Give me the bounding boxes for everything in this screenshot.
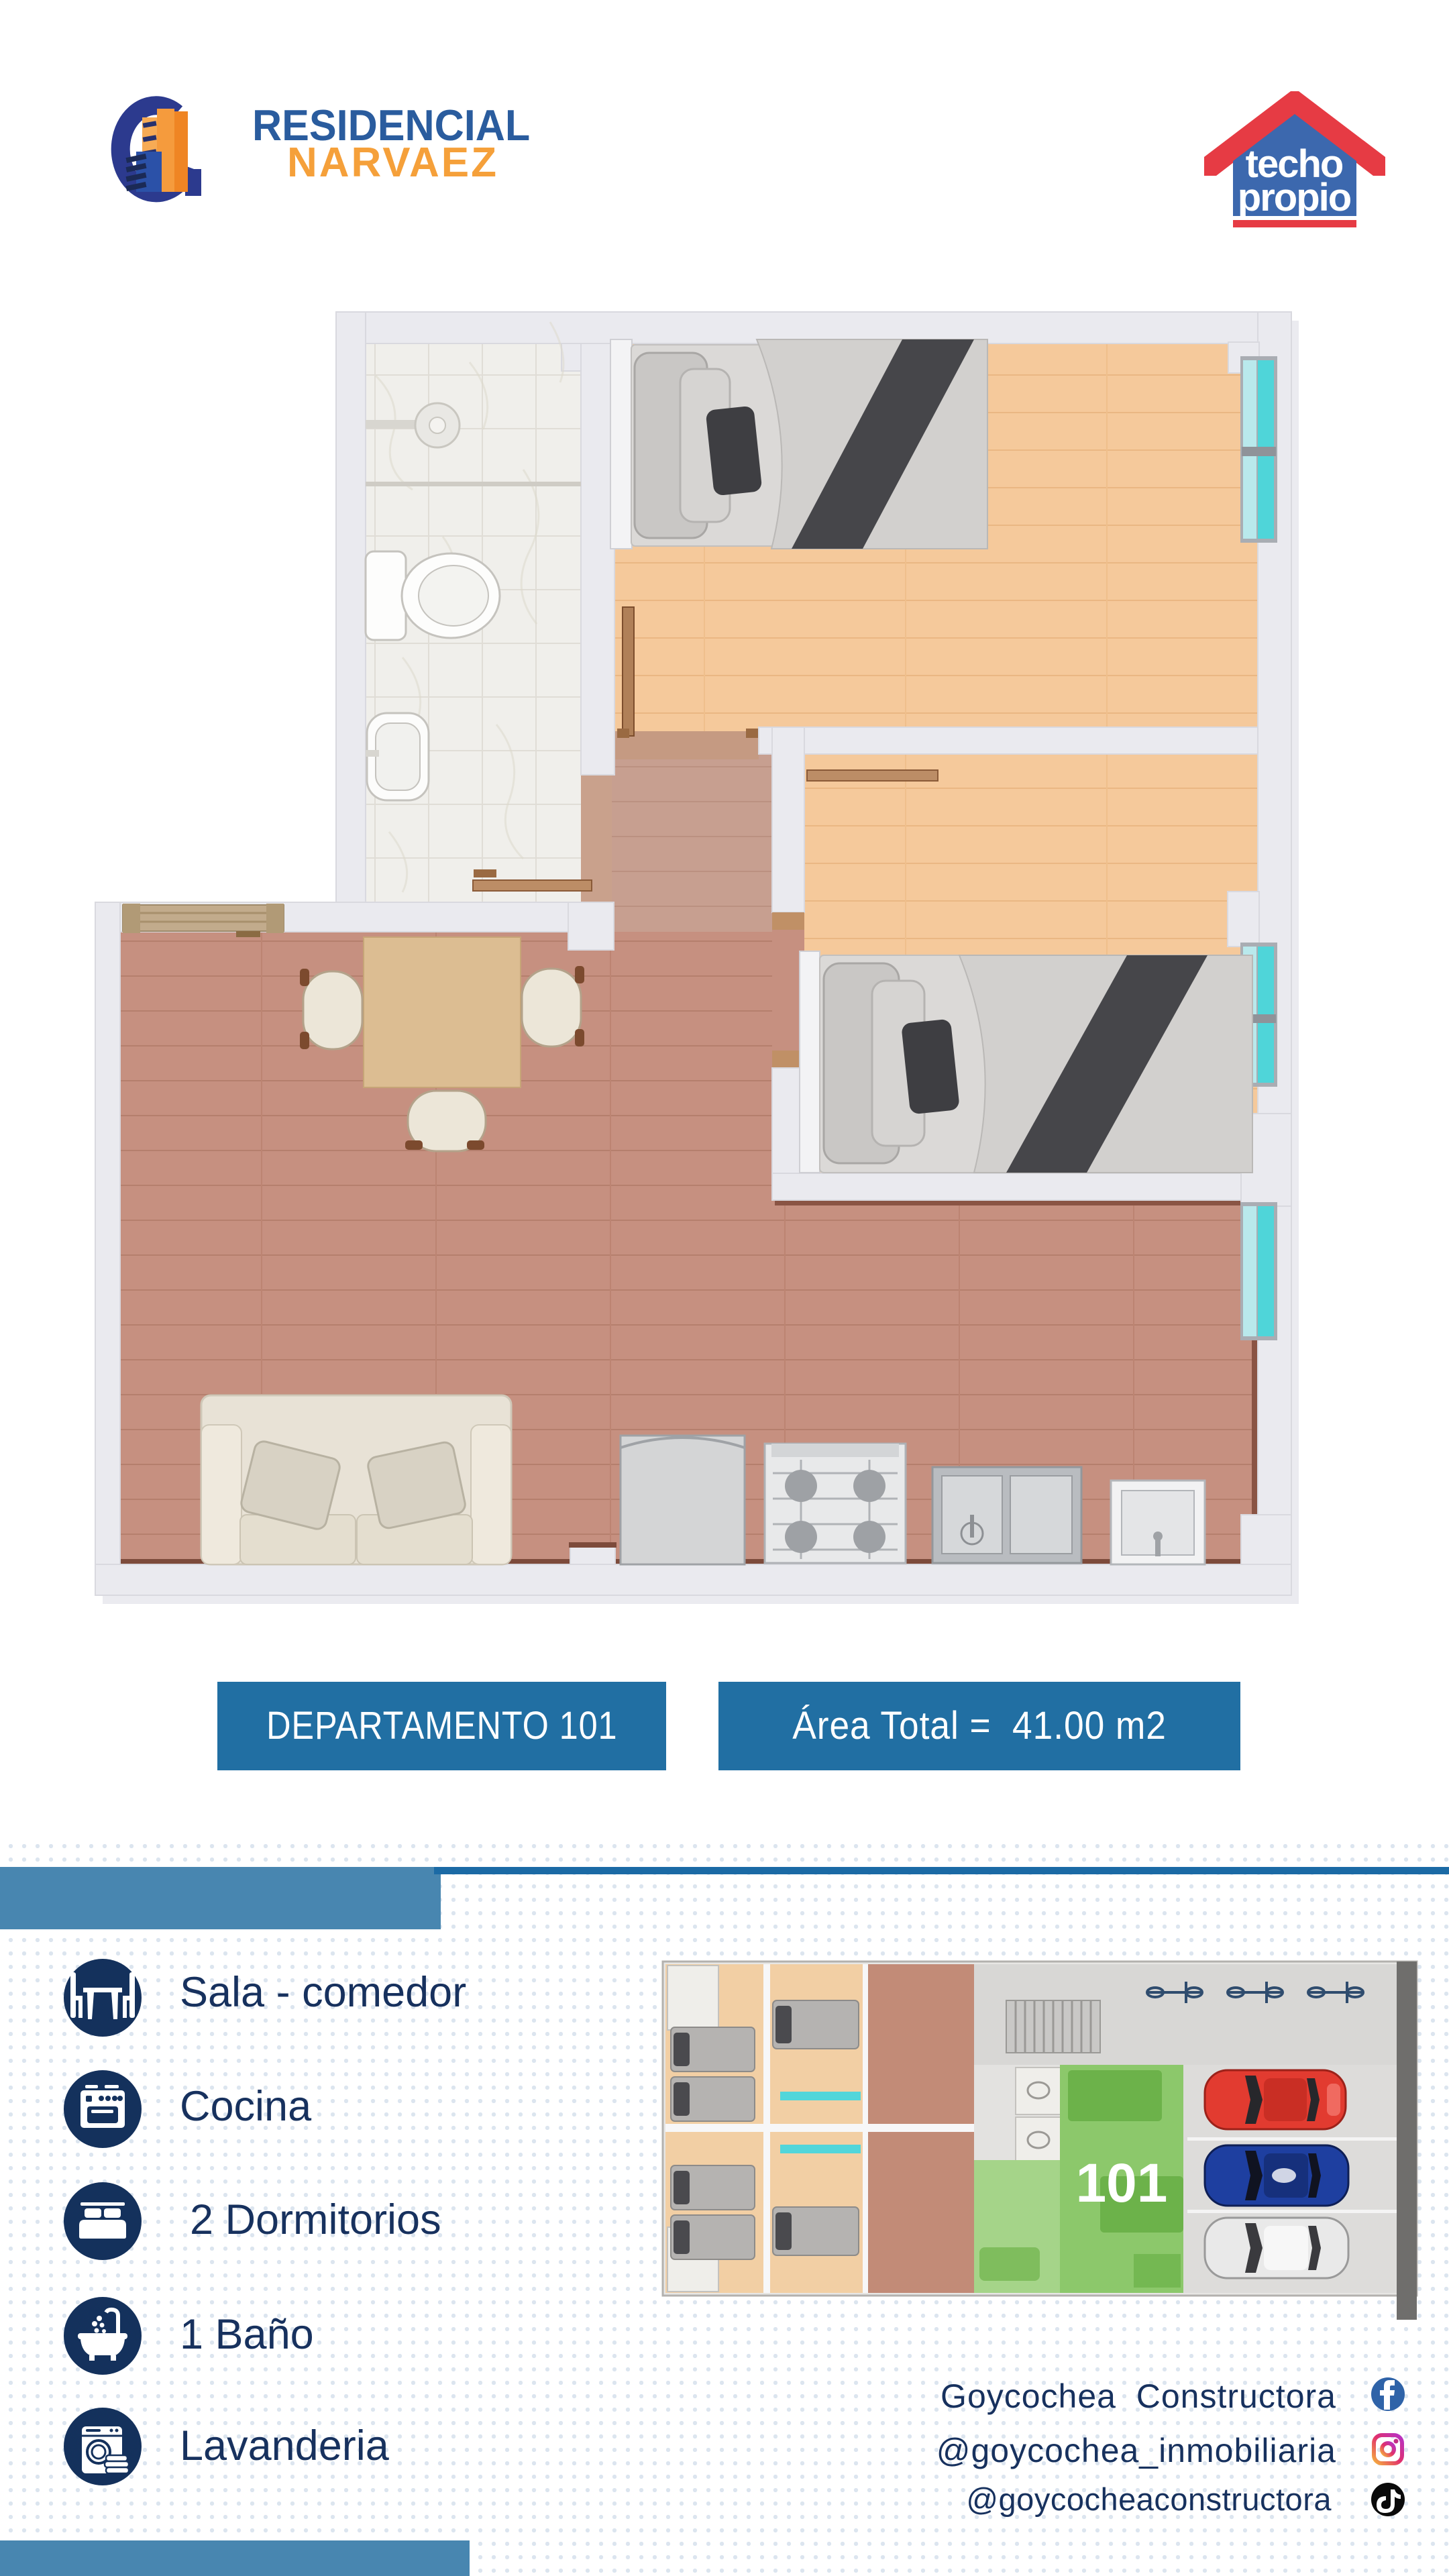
svg-text:propio: propio	[1238, 176, 1351, 219]
svg-text:101: 101	[1076, 2153, 1168, 2214]
